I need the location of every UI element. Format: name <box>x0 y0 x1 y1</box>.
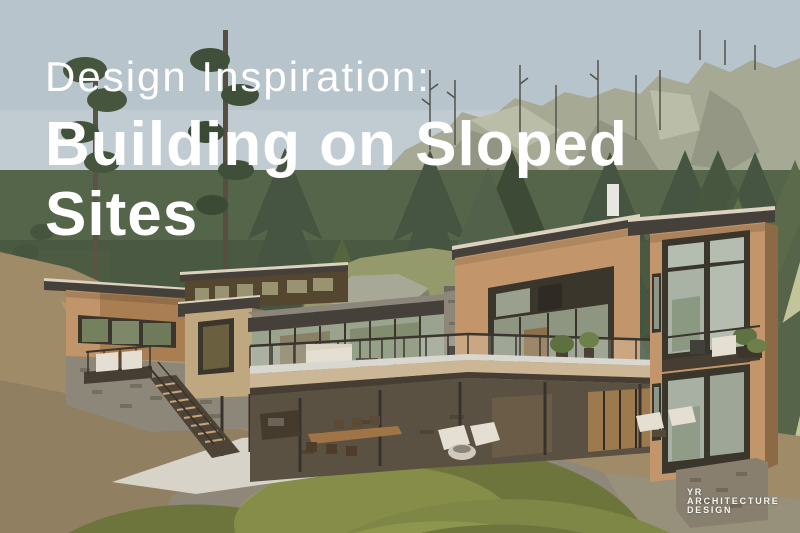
watermark-logo: YR ARCHITECTURE DESIGN <box>687 488 780 515</box>
tower-upper-windows <box>662 230 750 372</box>
balcony-chair <box>122 350 142 370</box>
balcony-chair <box>712 335 736 357</box>
entry-window <box>203 324 229 370</box>
headline-title: Building on Sloped Sites <box>45 110 775 250</box>
lower-glass <box>492 394 552 458</box>
balcony-plant <box>747 339 767 353</box>
headline-eyebrow: Design Inspiration: <box>45 54 775 100</box>
right-tower <box>628 206 778 528</box>
headline-block: Design Inspiration: Building on Sloped S… <box>45 54 775 250</box>
hero-image: Design Inspiration: Building on Sloped S… <box>0 0 800 533</box>
balcony-chair <box>690 340 705 354</box>
balcony-chair <box>96 352 118 372</box>
watermark-line-3: DESIGN <box>687 506 780 515</box>
